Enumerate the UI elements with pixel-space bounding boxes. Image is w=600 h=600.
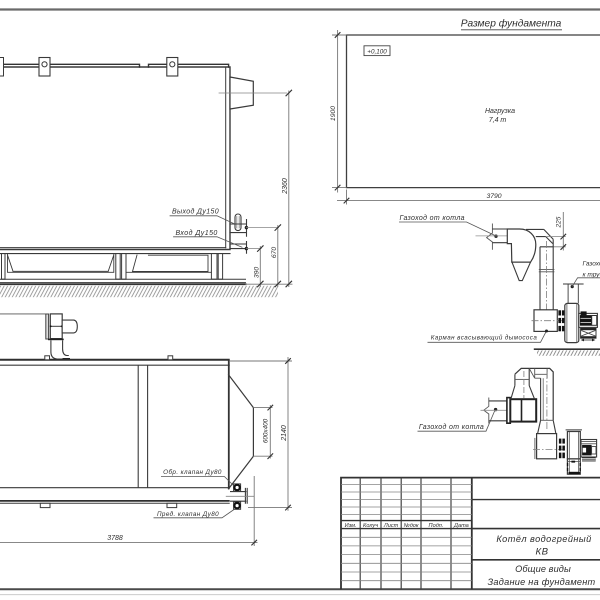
svg-text:к трубе: к трубе [583, 271, 600, 279]
svg-text:Газоход от котла: Газоход от котла [419, 423, 484, 431]
svg-text:Газоход: Газоход [583, 260, 600, 268]
svg-text:670: 670 [271, 247, 278, 259]
svg-text:Подп.: Подп. [429, 523, 444, 529]
svg-text:Задание на фундамент: Задание на фундамент [488, 577, 596, 587]
svg-text:1900: 1900 [330, 106, 337, 121]
svg-text:Изм.: Изм. [345, 523, 357, 529]
svg-text:2360: 2360 [282, 178, 289, 195]
svg-text:7,4 т: 7,4 т [489, 117, 507, 124]
svg-text:Котёл водогрейный: Котёл водогрейный [496, 534, 591, 544]
svg-text:Общие виды: Общие виды [515, 564, 571, 574]
svg-text:Колуч: Колуч [363, 523, 378, 529]
svg-text:№док: №док [404, 523, 419, 529]
svg-text:Нагрузка: Нагрузка [485, 108, 515, 115]
svg-text:2140: 2140 [281, 425, 288, 442]
svg-text:3788: 3788 [107, 535, 123, 542]
svg-text:Обр. клапан Ду80: Обр. клапан Ду80 [163, 468, 222, 476]
svg-text:Лист: Лист [383, 523, 399, 529]
svg-text:390: 390 [254, 267, 261, 279]
svg-text:КВ: КВ [535, 546, 548, 557]
svg-text:600х400: 600х400 [263, 418, 270, 443]
svg-text:3790: 3790 [486, 193, 501, 200]
svg-text:Размер фундамента: Размер фундамента [461, 18, 562, 30]
svg-text:Газоход от котла: Газоход от котла [400, 214, 465, 222]
svg-text:Карман всасывающий дымососа: Карман всасывающий дымососа [431, 334, 538, 341]
svg-text:Дата: Дата [453, 523, 469, 529]
svg-text:Выход Ду150: Выход Ду150 [172, 208, 219, 216]
svg-text:Вход Ду150: Вход Ду150 [176, 229, 218, 237]
svg-text:+0,100: +0,100 [367, 48, 387, 55]
svg-text:Пред. клапан Ду80: Пред. клапан Ду80 [157, 510, 219, 518]
svg-text:225: 225 [556, 216, 563, 228]
